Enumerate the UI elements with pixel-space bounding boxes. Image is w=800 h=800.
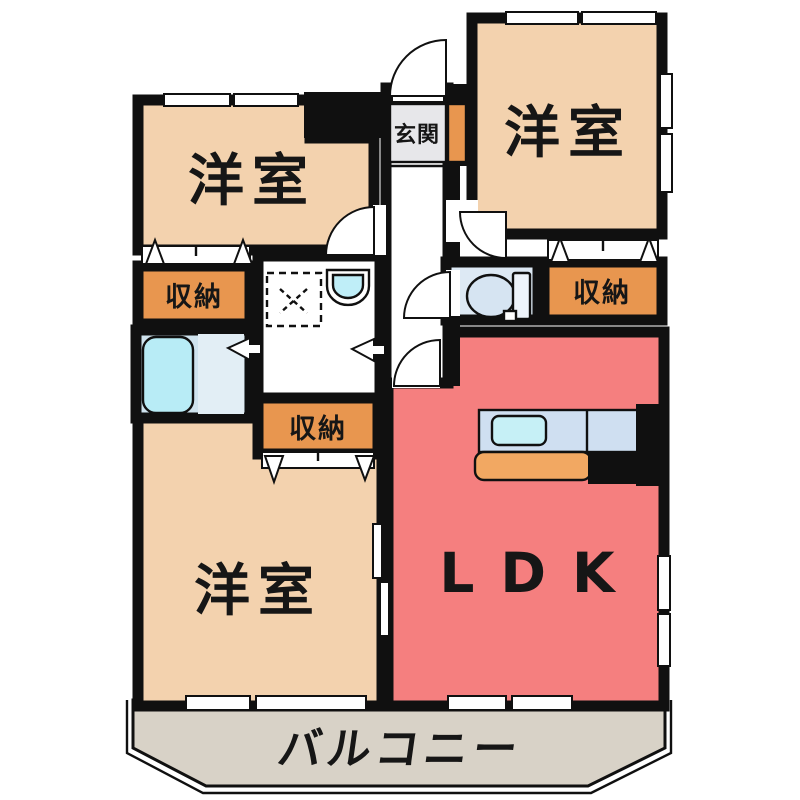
window-ldk-right-2: [658, 614, 670, 666]
wall-kitchen-bottom: [588, 452, 640, 484]
kitchen-counter-low-icon: [475, 452, 591, 480]
washing-machine-pan-icon: [267, 273, 321, 326]
washbasin-bowl-icon: [333, 275, 363, 298]
window-ne-top-2: [582, 12, 656, 24]
label-storage-center: 収納: [289, 413, 347, 445]
label-entrance: 玄関: [394, 122, 440, 148]
window-ne-top-1: [506, 12, 578, 24]
wall-kitchen-right: [636, 404, 666, 486]
label-balcony: バルコニー: [274, 724, 525, 775]
kitchen-sink-icon: [492, 416, 546, 445]
sliding-door-sw-ldk-1: [373, 524, 382, 578]
window-nw-top-2: [234, 94, 298, 106]
label-storage-nw: 収納: [165, 281, 223, 313]
label-bedroom-nw: 洋室: [188, 149, 316, 214]
window-nw-top-1: [164, 94, 230, 106]
floor-plan-svg: 洋室 洋室 洋室 LDK 玄関 収納 収納 収納 バルコニー: [0, 0, 800, 800]
sliding-door-sw-ldk-2: [380, 582, 389, 636]
window-sw-bottom-2: [256, 696, 366, 710]
toilet-flush-icon: [504, 311, 516, 321]
window-ne-right-2: [660, 134, 672, 192]
room-ldk: [388, 332, 664, 706]
window-ldk-right-1: [658, 556, 670, 610]
label-bedroom-ne: 洋室: [504, 101, 632, 166]
wall-hall-right-lower: [446, 316, 460, 386]
label-bedroom-sw: 洋室: [194, 559, 322, 624]
wall-entrance-left: [304, 92, 390, 138]
floor-plan-page: 洋室 洋室 洋室 LDK 玄関 収納 収納 収納 バルコニー: [0, 0, 800, 800]
label-ldk: LDK: [439, 541, 640, 605]
bathtub-icon: [143, 337, 193, 413]
window-ne-right-1: [660, 74, 672, 128]
window-sw-bottom-1: [186, 696, 250, 710]
window-ldk-bottom-2: [512, 696, 572, 710]
window-ldk-bottom-1: [448, 696, 506, 710]
label-storage-ne: 収納: [573, 277, 631, 309]
shoe-cabinet-icon: [448, 104, 466, 162]
